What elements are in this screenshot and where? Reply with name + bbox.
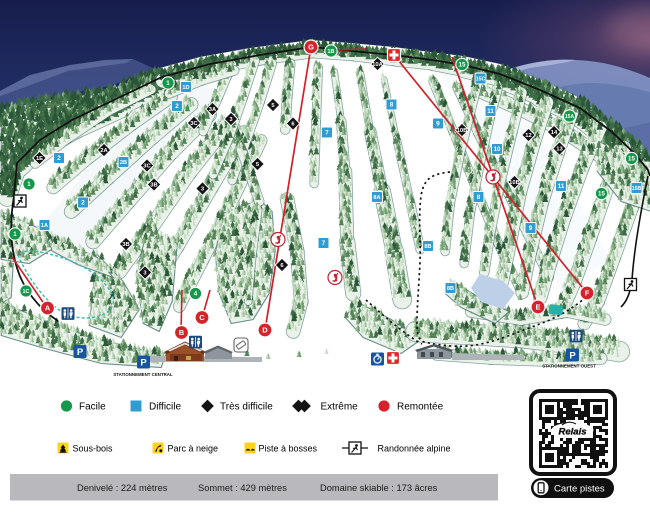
svg-text:Facile: Facile — [79, 402, 106, 413]
svg-text:Extrême: Extrême — [321, 402, 359, 413]
svg-text:3C: 3C — [190, 121, 198, 127]
svg-text:12: 12 — [525, 133, 531, 139]
svg-text:15: 15 — [598, 191, 605, 198]
svg-text:Piste à bosses: Piste à bosses — [259, 444, 318, 454]
svg-text:2: 2 — [57, 155, 61, 162]
svg-text:8A: 8A — [373, 195, 380, 201]
svg-text:3A: 3A — [209, 107, 217, 113]
svg-text:9: 9 — [529, 225, 533, 232]
svg-text:1A: 1A — [41, 223, 48, 229]
svg-text:1C: 1C — [23, 289, 30, 295]
svg-text:Parc à neige: Parc à neige — [168, 444, 219, 454]
svg-text:15B: 15B — [632, 186, 642, 192]
svg-text:E: E — [535, 303, 540, 312]
svg-text:Denivelé : 224 mètres: Denivelé : 224 mètres — [77, 483, 168, 493]
svg-text:2: 2 — [81, 200, 85, 207]
svg-text:Sous-bois: Sous-bois — [73, 444, 114, 454]
svg-text:1: 1 — [166, 80, 170, 87]
svg-text:G: G — [308, 43, 314, 52]
svg-text:3C: 3C — [143, 164, 151, 170]
svg-text:7: 7 — [322, 240, 326, 247]
svg-text:4: 4 — [194, 291, 198, 298]
svg-text:11: 11 — [487, 108, 494, 115]
svg-text:Difficile: Difficile — [149, 402, 181, 413]
svg-text:10B: 10B — [509, 180, 520, 186]
svg-text:2: 2 — [175, 103, 179, 110]
svg-text:Domaine skiable : 173 âcres: Domaine skiable : 173 âcres — [320, 483, 438, 493]
svg-text:Randonnée alpine: Randonnée alpine — [378, 444, 451, 454]
svg-text:1: 1 — [27, 181, 31, 188]
svg-text:1B: 1B — [328, 49, 335, 55]
svg-text:10: 10 — [494, 146, 501, 153]
svg-text:3B: 3B — [122, 242, 129, 248]
svg-text:15A: 15A — [565, 114, 575, 120]
svg-text:Sommet : 429 mètres: Sommet : 429 mètres — [198, 483, 287, 493]
svg-text:10A: 10A — [372, 62, 383, 68]
svg-text:Très difficile: Très difficile — [220, 402, 273, 413]
svg-text:9: 9 — [436, 121, 440, 128]
svg-text:P: P — [140, 357, 147, 368]
svg-text:15: 15 — [628, 156, 635, 163]
svg-text:8: 8 — [477, 194, 481, 201]
svg-text:A: A — [45, 304, 51, 313]
svg-text:15C: 15C — [476, 76, 486, 82]
svg-text:2B: 2B — [120, 160, 127, 166]
svg-text:13: 13 — [556, 147, 563, 153]
svg-text:P: P — [569, 350, 576, 361]
svg-text:3B: 3B — [150, 183, 157, 189]
svg-text:1E: 1E — [36, 156, 43, 162]
svg-text:C: C — [199, 313, 205, 322]
svg-text:8B: 8B — [424, 244, 431, 250]
svg-text:Remontée: Remontée — [397, 402, 444, 413]
svg-text:14: 14 — [551, 130, 558, 136]
svg-text:Carte pistes: Carte pistes — [554, 484, 605, 495]
svg-text:STATIONNEMENT OUEST: STATIONNEMENT OUEST — [542, 364, 596, 369]
svg-text:7: 7 — [325, 130, 329, 137]
svg-text:11: 11 — [558, 183, 565, 190]
svg-text:2A: 2A — [100, 148, 108, 154]
svg-text:F: F — [585, 289, 590, 298]
svg-text:1: 1 — [13, 231, 17, 238]
svg-text:10B: 10B — [457, 128, 468, 134]
svg-text:8B: 8B — [447, 286, 454, 292]
svg-text:STATIONNEMENT CENTRAL: STATIONNEMENT CENTRAL — [113, 372, 173, 377]
svg-text:Relais: Relais — [559, 427, 587, 438]
svg-text:D: D — [262, 326, 268, 335]
svg-text:B: B — [179, 328, 185, 337]
svg-text:1D: 1D — [182, 85, 189, 91]
svg-text:15: 15 — [459, 62, 466, 69]
svg-text:P: P — [77, 347, 84, 358]
svg-text:8: 8 — [390, 102, 394, 109]
